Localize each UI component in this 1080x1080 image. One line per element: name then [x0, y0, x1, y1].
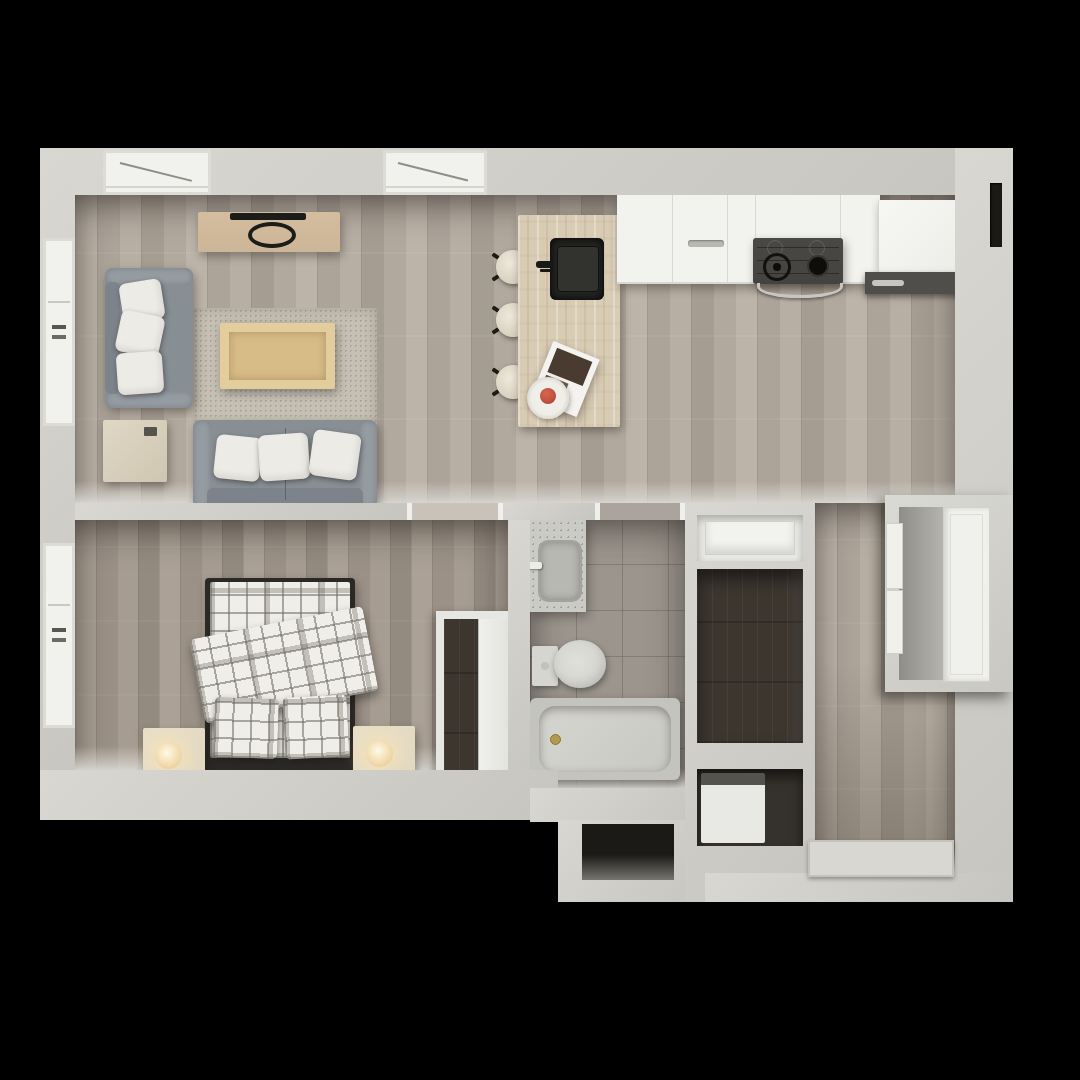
- interior-wall-bed-bath: [508, 520, 530, 795]
- bathtub: [530, 698, 680, 780]
- window-mullion: [48, 301, 70, 303]
- bath-block-wall: [530, 788, 705, 822]
- window-pane-open: [398, 162, 468, 181]
- coffee-table: [220, 323, 335, 389]
- drawer-handle: [688, 240, 724, 247]
- shelf-drawer: [705, 521, 795, 555]
- washer-closet-interior: [697, 769, 803, 846]
- floor-plan-render: [0, 0, 1080, 1080]
- window-hardware: [52, 325, 66, 329]
- window-mullion: [48, 604, 70, 606]
- tv-stand-ring: [248, 222, 296, 248]
- bed-pillow: [282, 694, 349, 759]
- table-lamp: [366, 740, 393, 767]
- washer: [701, 773, 765, 843]
- burner-front-left: [763, 253, 791, 281]
- window-sill-line: [106, 186, 208, 188]
- island-sink: [550, 238, 604, 300]
- door-jamb: [680, 503, 685, 520]
- cabinet-seam: [672, 195, 673, 282]
- door-jamb: [407, 503, 412, 520]
- window-pane-open: [120, 162, 192, 182]
- cabinet-seam: [727, 195, 728, 282]
- throw-pillow: [257, 432, 310, 481]
- exterior-niche: [582, 824, 674, 880]
- bathtub-drain: [550, 734, 561, 745]
- interior-wall-divider: [500, 503, 598, 520]
- wardrobe-sliding-door: [478, 619, 509, 794]
- bed-pillow: [213, 697, 279, 759]
- refrigerator: [878, 200, 965, 272]
- tv-screen: [230, 213, 306, 220]
- shelf-niche: [697, 515, 803, 561]
- sofa: [193, 420, 377, 508]
- window-top-2: [383, 150, 487, 195]
- burner-front-right: [807, 255, 829, 277]
- bathroom-vanity: [530, 520, 586, 612]
- throw-pillow: [308, 429, 362, 481]
- throw-pillow: [213, 434, 263, 483]
- right-wall-niche: [990, 183, 1002, 247]
- bedroom-door-opening: [412, 503, 498, 520]
- gas-cooktop: [753, 238, 843, 284]
- window-sill-line: [386, 186, 484, 188]
- plate: [527, 377, 569, 419]
- exterior-wall-bedroom-south: [40, 770, 558, 820]
- window-left-living: [43, 238, 75, 426]
- coffee-table-top: [229, 332, 326, 380]
- window-hardware: [52, 335, 66, 339]
- window-hardware: [52, 638, 66, 642]
- bathroom-door-opening: [600, 503, 680, 520]
- vanity-sink: [538, 540, 582, 602]
- appliance-handle: [872, 280, 904, 286]
- door-jamb: [498, 503, 503, 520]
- entry-closet-gap: [899, 507, 943, 680]
- sliding-panel: [886, 590, 903, 654]
- side-table-item: [144, 427, 157, 436]
- window-top-1: [103, 150, 211, 195]
- wardrobe-interior: [444, 619, 478, 794]
- window-left-bedroom: [43, 543, 75, 728]
- entry-mat: [808, 840, 954, 877]
- window-hardware: [52, 628, 66, 632]
- burner-cap: [773, 263, 781, 271]
- entry-closet-unit: [885, 495, 1013, 692]
- toilet-bowl: [554, 640, 606, 688]
- loveseat: [105, 268, 193, 408]
- flush-button: [541, 662, 549, 670]
- door-jamb: [595, 503, 600, 520]
- loveseat-arm: [105, 391, 193, 408]
- throw-pillow: [116, 350, 165, 395]
- island-faucet: [536, 261, 553, 268]
- burner-ghost: [809, 240, 825, 256]
- tv-console: [198, 212, 340, 252]
- sink-basin: [557, 246, 599, 292]
- red-bowl: [540, 388, 556, 404]
- side-table: [103, 420, 167, 482]
- sliding-panel: [886, 523, 903, 589]
- interior-wall-divider: [75, 503, 410, 520]
- table-lamp: [155, 742, 182, 769]
- exterior-wall-entry-south: [705, 873, 1013, 902]
- walk-in-closet-interior: [697, 569, 803, 743]
- door-panel-line: [950, 514, 983, 675]
- under-counter-appliance: [865, 272, 962, 294]
- entry-closet-door: [943, 507, 990, 682]
- kitchen-island: [518, 215, 620, 427]
